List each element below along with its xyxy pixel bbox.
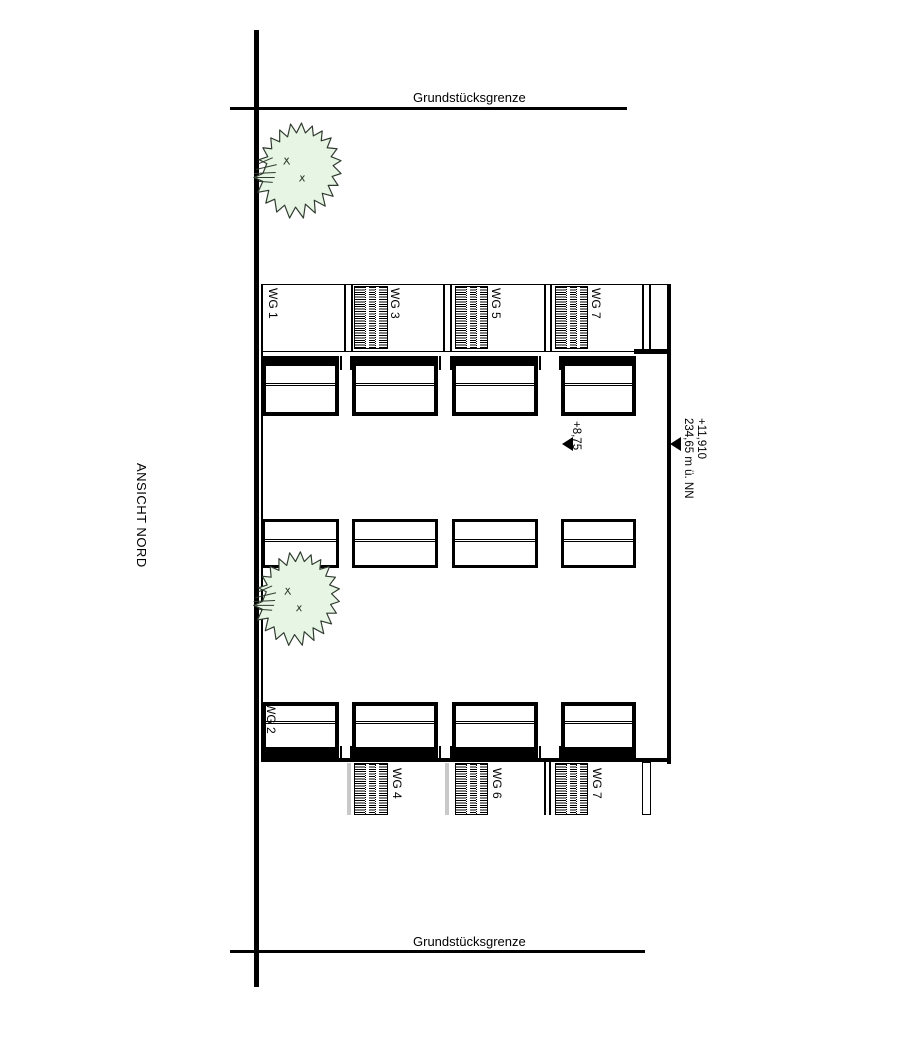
unit-label-wg7-bottom: WG 7: [590, 768, 604, 799]
window: [452, 356, 538, 416]
site-boundary-line-bottom: [230, 950, 645, 953]
gray-post: [445, 763, 449, 815]
window-pane: [356, 366, 434, 383]
tree: [249, 116, 344, 231]
unit-label-wg7: WG 7: [589, 288, 603, 319]
window-pane: [355, 522, 435, 539]
elevation-drawing-sheet: Grundstücksgrenze Grundstücksgrenze ANSI…: [0, 0, 902, 1042]
band-joint-line: [544, 285, 546, 351]
window: [561, 702, 636, 760]
view-title: ANSICHT NORD: [133, 463, 149, 568]
joint-stub: [350, 356, 352, 370]
unit-label-wg4: WG 4: [390, 768, 404, 799]
joint-stub: [340, 356, 342, 370]
unit-label-wg1: WG 1: [266, 288, 280, 319]
joint-stub: [350, 746, 352, 760]
site-boundary-label-bottom: Grundstücksgrenze: [413, 934, 526, 949]
band-edge-thick: [634, 349, 671, 354]
elevation-value-ridge: +11,910: [694, 418, 707, 499]
window: [561, 356, 636, 416]
band-joint-line: [351, 285, 353, 351]
joint-stub: [559, 746, 561, 760]
louver-panel: [555, 763, 588, 815]
window-pane: [356, 724, 434, 747]
unit-label-wg3: WG 3: [388, 288, 402, 319]
window: [262, 356, 339, 416]
window: [452, 702, 538, 760]
window: [561, 519, 636, 568]
louver-panel: [455, 763, 488, 815]
louver-panel: [555, 286, 588, 349]
joint-stub: [539, 356, 541, 370]
elevation-datum: 234,65 m ü. NN: [681, 418, 694, 499]
band-joint-line: [550, 285, 552, 351]
window-pane: [564, 542, 633, 565]
dark-post: [549, 762, 551, 815]
window: [352, 356, 438, 416]
window-pane: [355, 542, 435, 565]
unit-label-wg5: WG 5: [489, 288, 503, 319]
band-joint-line: [649, 285, 651, 351]
band-joint-line: [450, 285, 452, 351]
tree-crown: [254, 123, 341, 218]
window-pane: [565, 386, 632, 412]
site-boundary-line-top: [230, 107, 627, 110]
window: [352, 519, 438, 568]
elevation-marker-icon: [670, 437, 681, 451]
window-pane: [455, 542, 535, 565]
window-pane: [456, 706, 534, 721]
window-pane: [266, 366, 335, 383]
site-boundary-label-top: Grundstücksgrenze: [413, 90, 526, 105]
band-joint-line: [443, 285, 445, 351]
window-pane: [266, 386, 335, 412]
elevation-ridge-block: +11,910 234,65 m ü. NN: [681, 418, 707, 499]
window-pane: [565, 366, 632, 383]
window-pane: [565, 706, 632, 721]
joint-stub: [340, 746, 342, 760]
joint-stub: [439, 746, 441, 760]
window: [352, 702, 438, 760]
joint-stub: [450, 356, 452, 370]
louver-panel: [455, 286, 488, 349]
window-pane: [265, 522, 336, 539]
joint-stub: [439, 356, 441, 370]
dark-post: [544, 762, 546, 815]
joint-stub: [539, 746, 541, 760]
band-joint-line: [642, 285, 644, 351]
joint-stub: [450, 746, 452, 760]
tree-crown: [254, 552, 340, 646]
gray-post: [347, 763, 351, 815]
louver-panel: [354, 286, 388, 349]
window-pane: [455, 522, 535, 539]
window-pane: [356, 386, 434, 412]
window-pane: [456, 386, 534, 412]
window: [452, 519, 538, 568]
louver-panel: [354, 763, 388, 815]
joint-stub: [559, 356, 561, 370]
window-pane: [564, 522, 633, 539]
window-pane: [356, 706, 434, 721]
facade-edge-right: [667, 284, 671, 764]
elevation-value-attic: +8,75: [569, 421, 582, 450]
window-pane: [565, 724, 632, 747]
window-pane: [456, 724, 534, 747]
downpipe: [642, 762, 651, 815]
window-pane: [456, 366, 534, 383]
unit-label-wg6: WG 6: [490, 768, 504, 799]
band-joint-line: [344, 285, 346, 351]
unit-label-wg2: WG 2: [264, 703, 278, 734]
tree: [248, 545, 343, 658]
